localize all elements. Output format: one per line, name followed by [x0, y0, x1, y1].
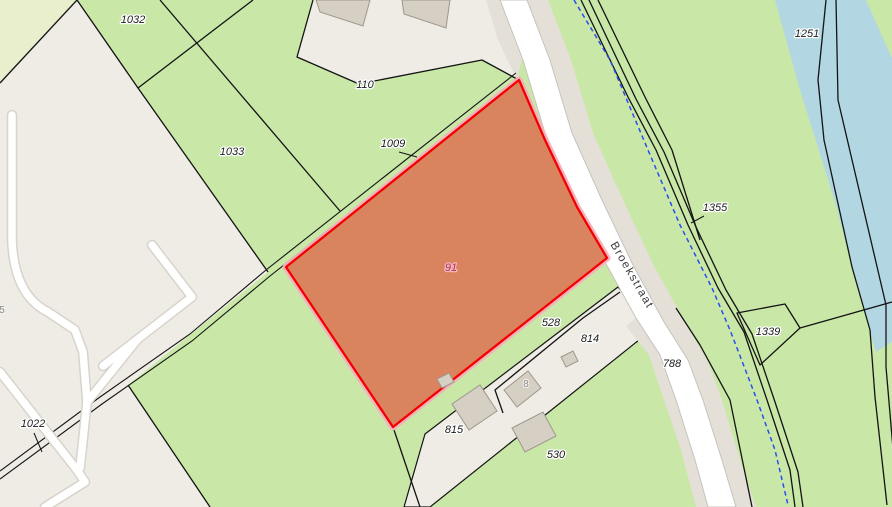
parcel-label-1009: 1009: [381, 138, 405, 150]
parcel-label-815: 815: [445, 424, 464, 436]
house-number-5: 5: [0, 305, 5, 316]
parcel-label-1355: 1355: [703, 202, 728, 214]
parcel-label-1033: 1033: [220, 146, 245, 158]
parcel-label-530: 530: [547, 449, 566, 461]
parcel-label-1251: 1251: [795, 28, 819, 40]
parcel-label-528: 528: [542, 317, 561, 329]
parcel-label-1022: 1022: [21, 418, 45, 430]
parcel-label-814: 814: [581, 333, 599, 345]
parcel-label-1032: 1032: [121, 14, 145, 26]
parcel-label-110: 110: [356, 79, 374, 91]
parcel-label-788: 788: [663, 358, 682, 370]
selected-parcel-number-label: 91: [445, 262, 457, 274]
house-number-8: 8: [523, 379, 529, 390]
map-viewport[interactable]: 1032110103310091251135513395288147888155…: [0, 0, 892, 507]
parcel-label-1339: 1339: [756, 326, 780, 338]
